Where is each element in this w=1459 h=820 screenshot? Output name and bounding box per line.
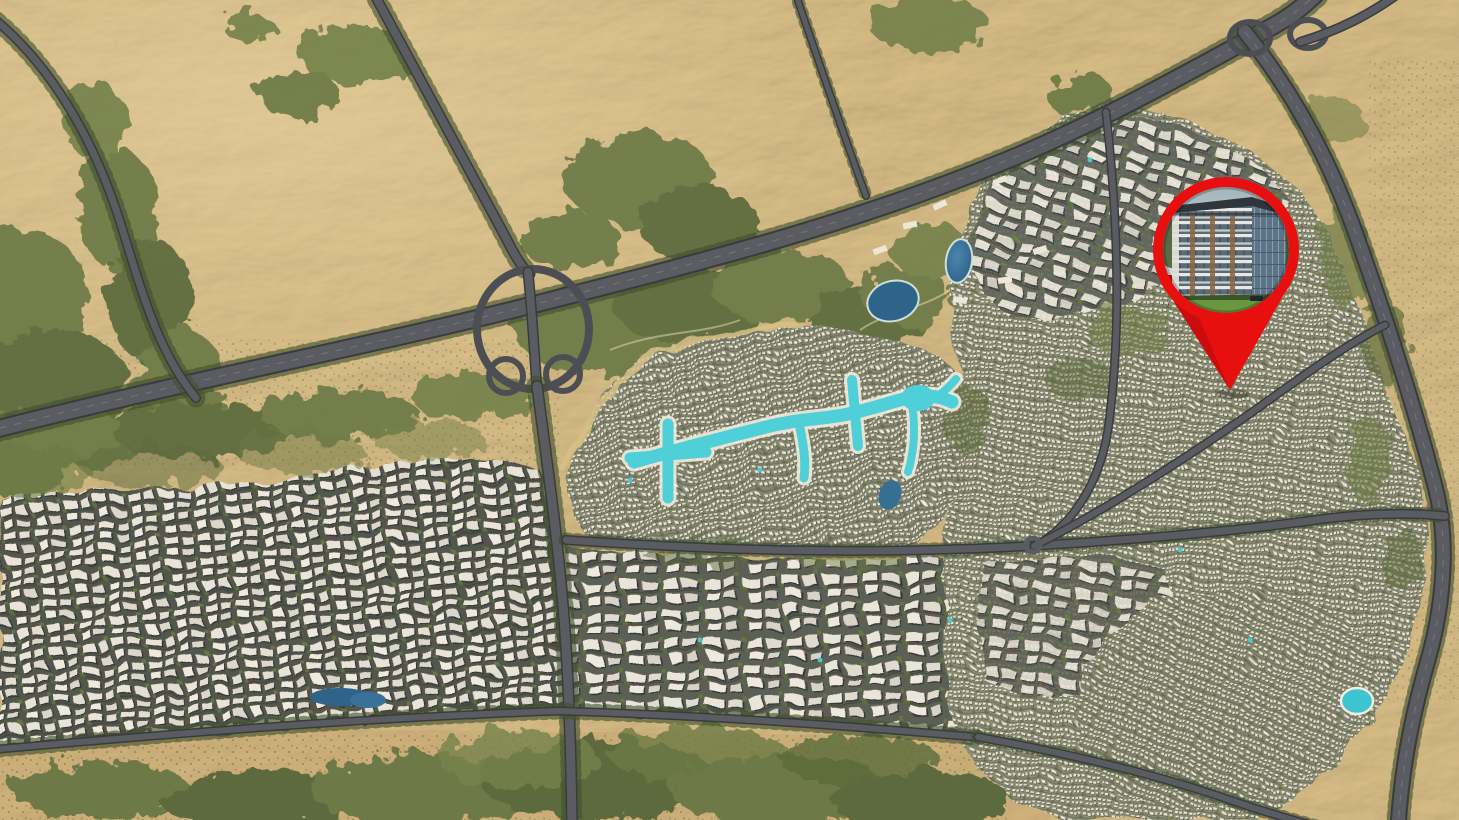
district-west-apartments bbox=[0, 458, 566, 748]
masterplan-map bbox=[0, 0, 1459, 820]
lagoon-basin bbox=[901, 385, 935, 411]
photo-wood-pier bbox=[1210, 214, 1215, 299]
photo-wood-pier bbox=[1190, 214, 1195, 300]
pin-shadow bbox=[1216, 389, 1250, 399]
masterplan-map-canvas bbox=[0, 0, 1459, 820]
photo-wood-pier bbox=[1230, 214, 1235, 298]
pond-southwest-2 bbox=[350, 692, 386, 708]
pool-southeast bbox=[1341, 688, 1373, 714]
photo-parapet-shadow bbox=[1172, 213, 1286, 216]
